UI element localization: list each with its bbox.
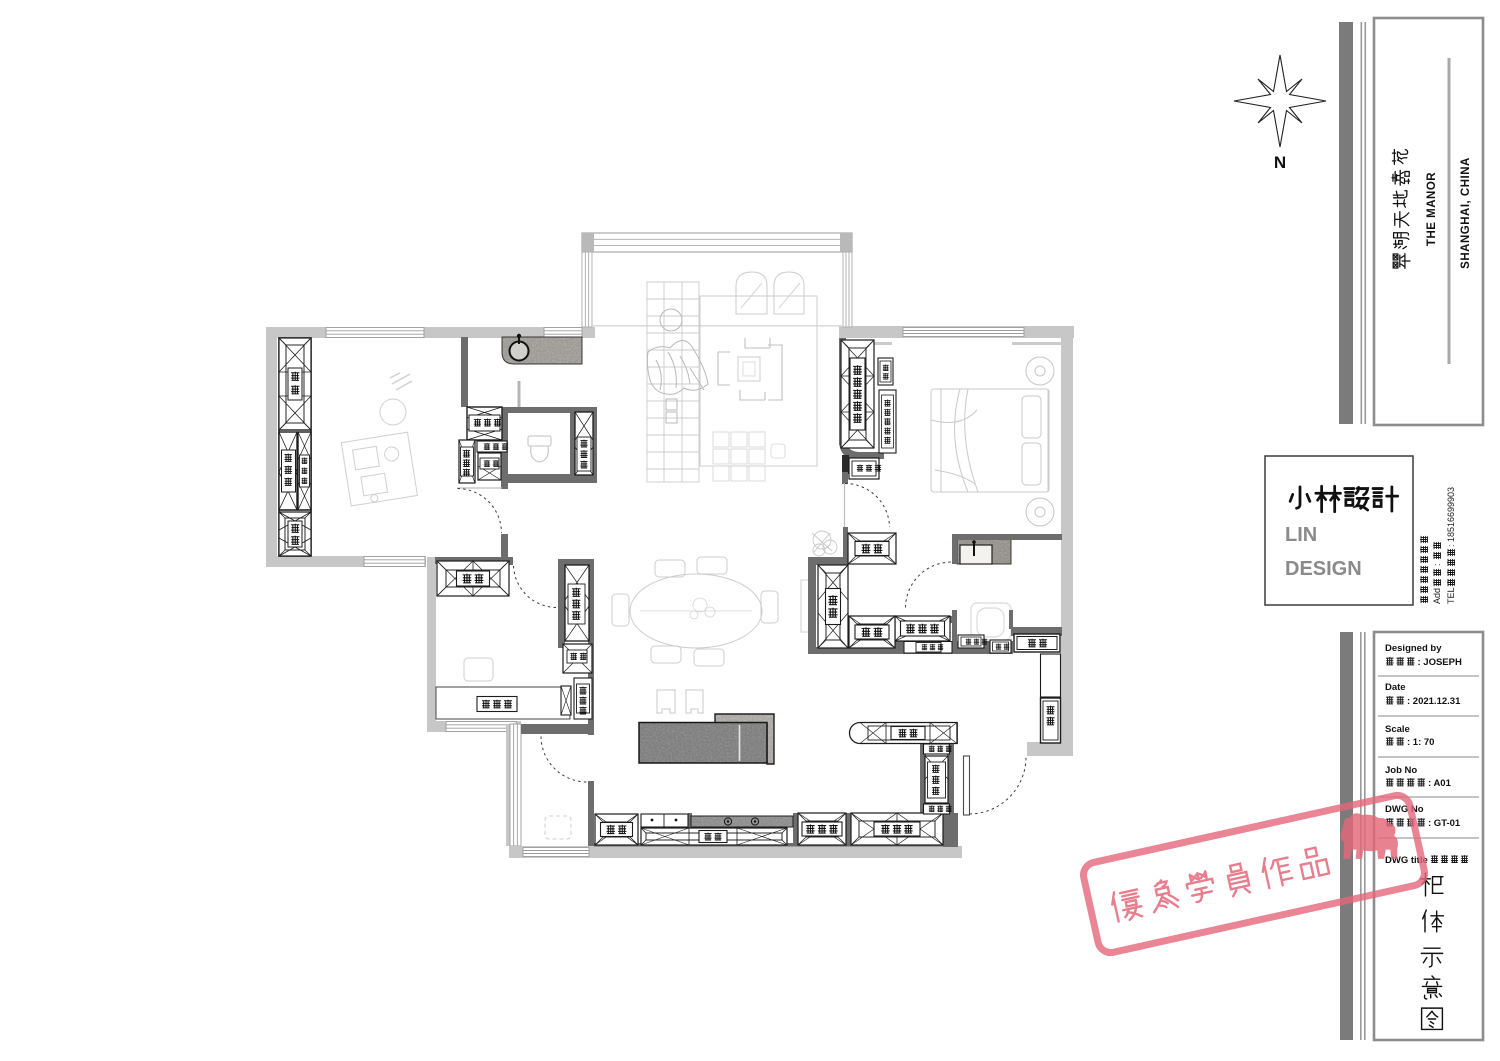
svg-text:Add: Add — [1432, 588, 1442, 604]
svg-text::: : — [1432, 563, 1442, 566]
svg-text:: 1: 70: : 1: 70 — [1407, 737, 1434, 748]
svg-text:TEL: TEL — [1446, 587, 1456, 604]
svg-text:: 18516699903: : 18516699903 — [1446, 487, 1456, 547]
svg-text:: JOSEPH: : JOSEPH — [1418, 657, 1462, 668]
svg-text:: A01: : A01 — [1428, 778, 1452, 789]
svg-text:Designed by: Designed by — [1385, 643, 1442, 654]
svg-text:: GT-01: : GT-01 — [1428, 818, 1461, 829]
svg-text:Job No: Job No — [1385, 765, 1417, 776]
svg-text:Scale: Scale — [1385, 724, 1410, 735]
svg-text:N: N — [1274, 153, 1286, 172]
svg-text:: 2021.12.31: : 2021.12.31 — [1407, 696, 1461, 707]
svg-text:SHANGHAI, CHINA: SHANGHAI, CHINA — [1460, 157, 1472, 269]
svg-text:THE MANOR: THE MANOR — [1426, 172, 1438, 246]
svg-text:Date: Date — [1385, 682, 1406, 693]
svg-text:DWG No: DWG No — [1385, 804, 1424, 815]
svg-text:DESIGN: DESIGN — [1285, 558, 1362, 580]
svg-text:LIN: LIN — [1285, 524, 1317, 546]
